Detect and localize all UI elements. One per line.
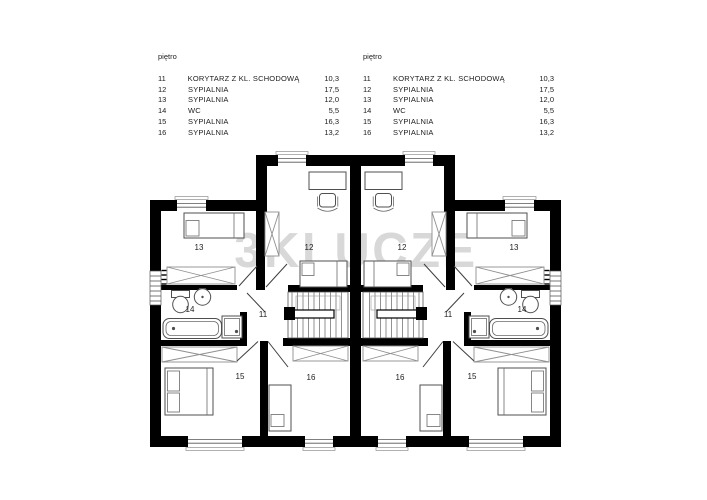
bathtub [163,319,222,339]
floor-plan-drawing: 3KLUCZE [0,0,707,500]
wardrobe-room12 [265,212,279,256]
double-bed-room15 [165,368,213,415]
room-label-13-right: 13 [510,243,519,252]
window-top-center [276,152,308,167]
room-label-11-left: 11 [259,310,268,319]
window-bottom-15 [186,436,244,451]
sink [194,289,210,306]
room-label-12-right: 12 [398,243,407,252]
window-top-side [175,197,208,212]
room-label-16-right: 16 [396,373,405,382]
bed-room12 [300,261,347,287]
floorplan-page: piętro 11 KORYTARZ Z KL. SCHODOWĄ 10,3 1… [0,0,707,500]
stair-handrail [294,310,334,318]
window-bottom-16 [303,436,335,451]
room-label-11-right: 11 [444,310,453,319]
room-label-13-left: 13 [195,243,204,252]
shower [222,316,242,338]
bed-room16 [269,385,291,431]
room-label-14-right: 14 [518,305,527,314]
room-label-16-left: 16 [307,373,316,382]
radiator-niche [150,271,161,305]
staircase [284,292,348,338]
room-label-15-left: 15 [236,372,245,381]
room-label-14-left: 14 [186,305,195,314]
stair-newel [284,307,295,320]
room-label-15-right: 15 [468,372,477,381]
bed-room13 [184,213,244,238]
wardrobe-room15 [162,347,237,362]
room-label-12-left: 12 [305,243,314,252]
wardrobe-room16 [293,346,348,361]
desk-room12 [309,172,346,190]
wardrobe-room13 [167,267,235,284]
